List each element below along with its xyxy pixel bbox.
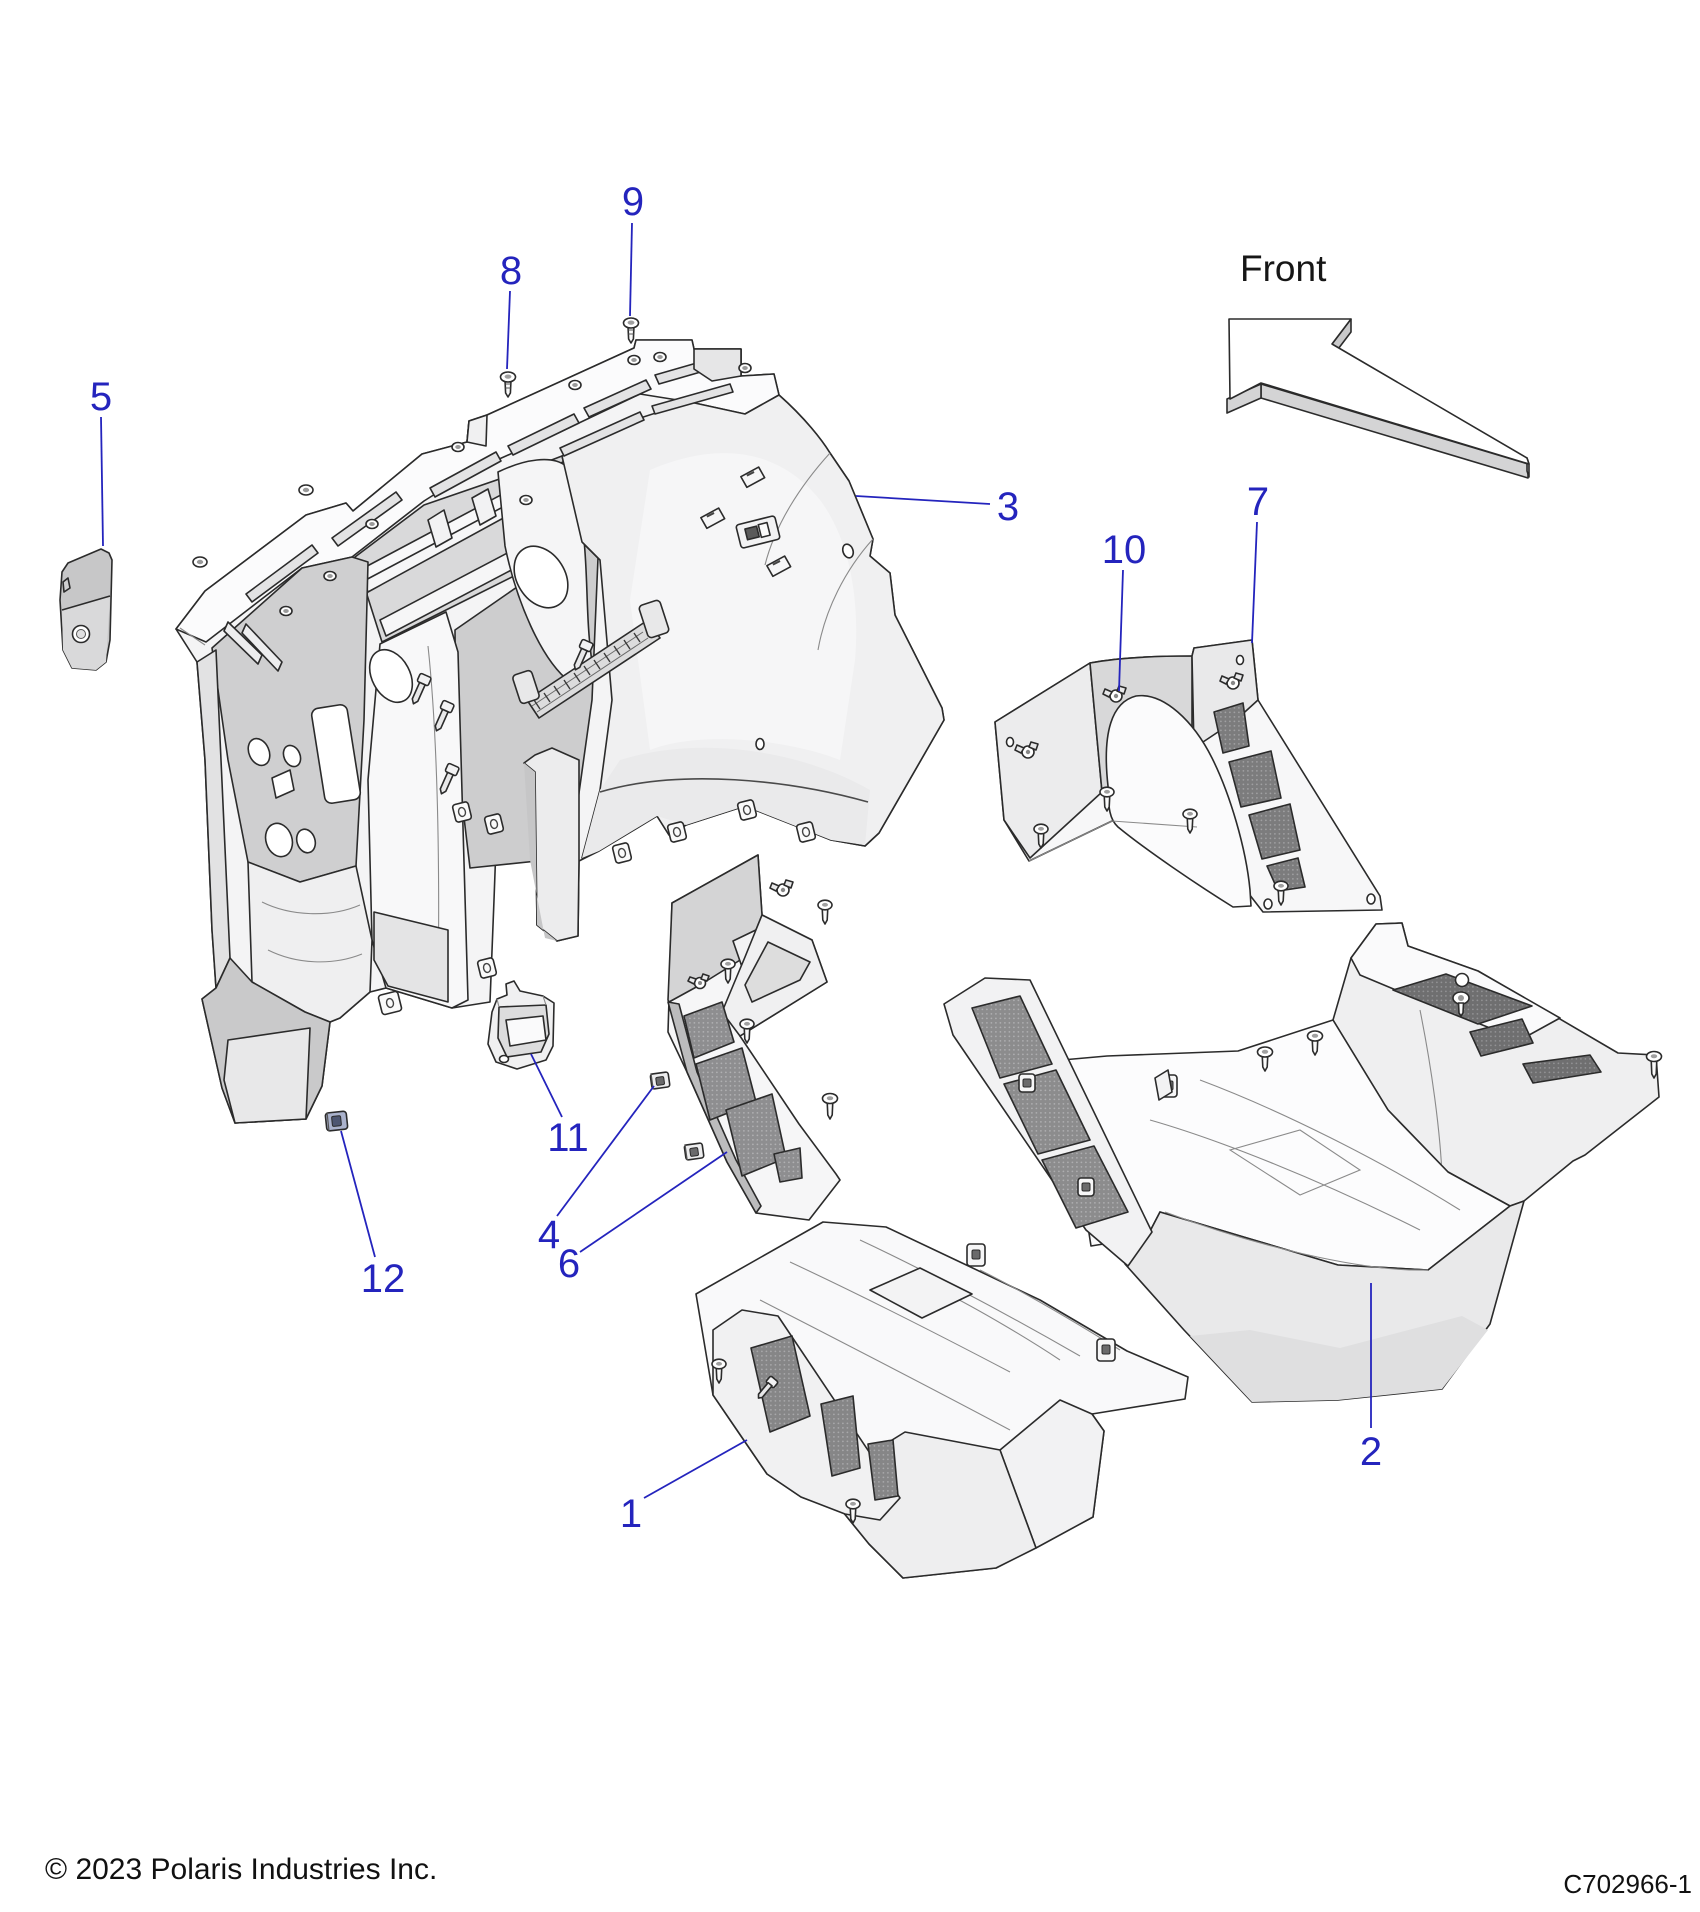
svg-text:9: 9 xyxy=(622,180,644,224)
svg-text:7: 7 xyxy=(1247,480,1269,524)
svg-text:© 2023 Polaris Industries Inc.: © 2023 Polaris Industries Inc. xyxy=(45,1853,437,1886)
svg-text:10: 10 xyxy=(1102,528,1147,572)
svg-text:6: 6 xyxy=(558,1242,580,1286)
svg-text:1: 1 xyxy=(620,1492,642,1536)
svg-text:Front: Front xyxy=(1240,248,1327,289)
svg-text:2: 2 xyxy=(1360,1430,1382,1474)
svg-text:4: 4 xyxy=(538,1213,560,1257)
svg-text:11: 11 xyxy=(547,1116,589,1160)
svg-text:C702966-1: C702966-1 xyxy=(1563,1869,1692,1899)
svg-text:5: 5 xyxy=(90,375,112,419)
svg-text:8: 8 xyxy=(500,249,522,293)
svg-text:3: 3 xyxy=(997,485,1019,529)
svg-text:12: 12 xyxy=(361,1257,406,1301)
